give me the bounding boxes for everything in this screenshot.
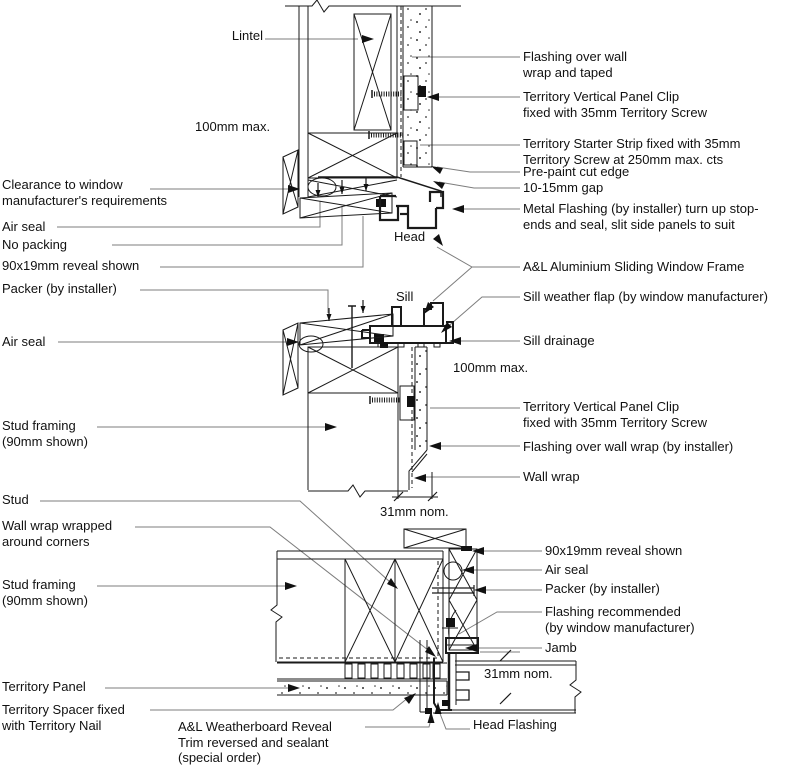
label-wrap-corners: Wall wrap wrapped around corners [2,518,112,549]
label-prepaint-edge: Pre-paint cut edge [523,164,629,180]
break-line-top [285,0,461,12]
label-head-reveal: 90x19mm reveal shown [2,258,139,274]
reveal-corner-piece [283,150,298,214]
frame-clips [456,672,469,700]
head-detail [283,0,461,228]
label-sill-air-seal: Air seal [2,334,45,350]
sill-detail [283,300,453,501]
label-flashing-recommended: Flashing recommended (by window manufact… [545,604,695,635]
air-seal [308,178,336,196]
break-line [308,485,408,497]
label-no-packing: No packing [2,237,67,253]
label-window-frame: A&L Aluminium Sliding Window Frame [523,259,744,275]
label-head-panel-clip: Territory Vertical Panel Clip fixed with… [523,89,707,120]
label-weather-flap: Sill weather flap (by window manufacture… [523,289,768,305]
label-jamb-packer: Packer (by installer) [545,581,660,597]
label-jamb-reveal: 90x19mm reveal shown [545,543,682,559]
label-sill-flashing: Flashing over wall wrap (by installer) [523,439,733,455]
window-detail-drawing: Lintel 100mm max. Clearance to window ma… [0,0,794,768]
dimension-31mm-lines [392,472,438,499]
label-metal-flashing: Metal Flashing (by installer) turn up st… [523,201,759,232]
head-frame-profile [380,192,443,228]
label-flashing-taped: Flashing over wall wrap and taped [523,49,627,80]
label-head-packer: Packer (by installer) [2,281,117,297]
label-starter-strip: Territory Starter Strip fixed with 35mm … [523,136,740,167]
label-head-tag: Head [394,229,425,245]
label-stud: Stud [2,492,29,508]
air-seal [444,562,462,580]
label-jamb-air-seal: Air seal [545,562,588,578]
label-sill-stud-framing: Stud framing (90mm shown) [2,418,88,449]
long-nail [348,306,356,368]
annotation-arrows [285,35,486,723]
leader-lines [40,39,542,729]
label-clearance: Clearance to window manufacturer's requi… [2,177,167,208]
wall-lining-lines [299,6,308,197]
label-sill-tag: Sill [396,289,413,305]
label-head-flashing: Head Flashing [473,717,557,733]
wall-wrap-dashed [279,560,438,658]
territory-panel-section [277,681,447,695]
label-territory-spacer: Territory Spacer fixed with Territory Na… [2,702,125,733]
break-line-left [271,551,282,662]
break-line-right [570,661,581,713]
spacer-zone-lines [277,663,447,679]
label-sill-drainage: Sill drainage [523,333,595,349]
label-dim-31mm-top: 31mm nom. [380,504,449,520]
label-jamb-tag: Jamb [545,640,577,656]
label-sill-100mm-max: 100mm max. [453,360,528,376]
label-gap: 10-15mm gap [523,180,603,196]
label-territory-panel: Territory Panel [2,679,86,695]
reveal-board [449,549,477,650]
label-jamb-stud-framing: Stud framing (90mm shown) [2,577,88,608]
label-wall-wrap: Wall wrap [523,469,580,485]
territory-spacers [345,664,440,678]
label-dim-31mm-bottom: 31mm nom. [484,666,553,682]
jamb-detail [271,529,581,714]
label-head-100mm-max: 100mm max. [195,119,270,135]
territory-panel-section [415,347,427,450]
label-lintel: Lintel [205,28,263,44]
label-reveal-trim: A&L Weatherboard Reveal Trim reversed an… [178,719,332,766]
label-head-air-seal: Air seal [2,219,45,235]
stud-wall-lines [308,393,398,490]
label-sill-panel-clip: Territory Vertical Panel Clip fixed with… [523,399,707,430]
no-packing-gap [308,180,397,197]
reveal-corner-piece [283,323,298,395]
